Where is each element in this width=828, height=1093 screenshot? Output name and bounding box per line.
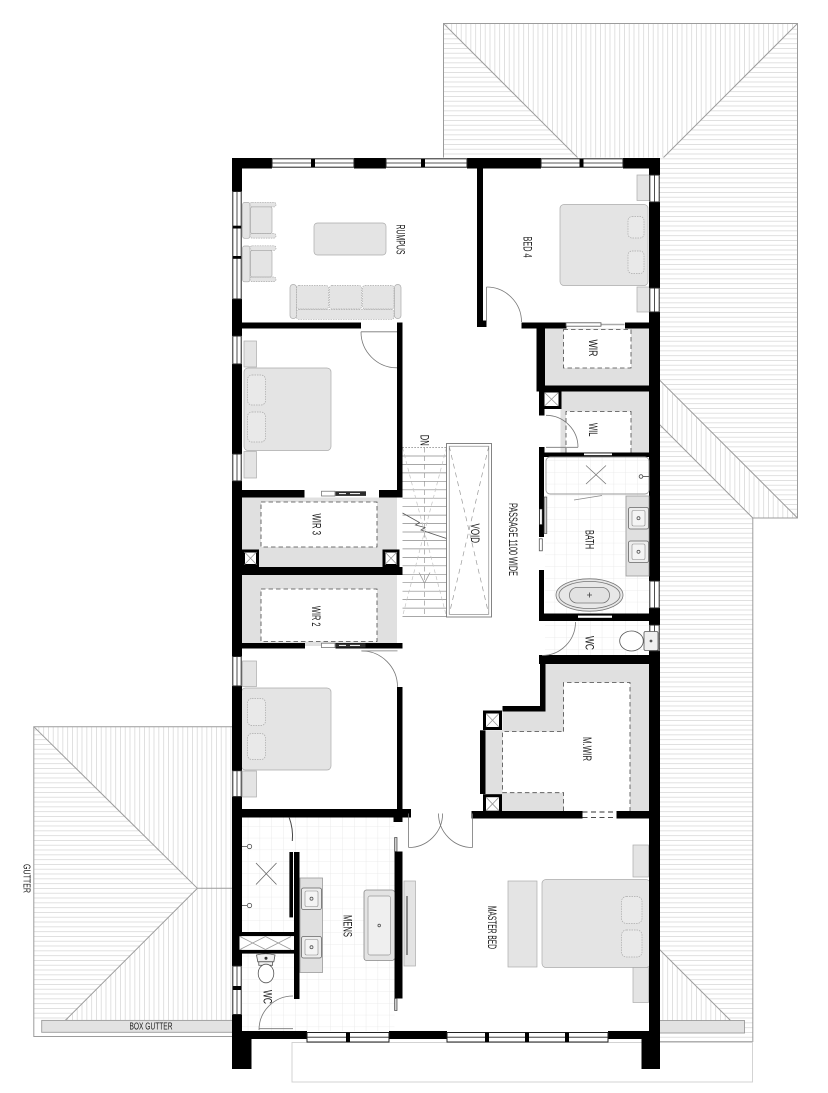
svg-text:WC: WC (261, 990, 273, 1004)
svg-text:WIL: WIL (586, 423, 598, 437)
svg-text:DN: DN (418, 435, 430, 446)
svg-text:MENS: MENS (341, 915, 353, 937)
svg-text:MASTER BED: MASTER BED (485, 906, 497, 949)
svg-text:BATH: BATH (583, 530, 595, 549)
svg-text:RUMPUS: RUMPUS (394, 225, 406, 255)
svg-text:GUTTER: GUTTER (21, 864, 32, 893)
svg-text:M.WIR: M.WIR (580, 737, 592, 761)
svg-text:WIR 3: WIR 3 (310, 514, 322, 536)
svg-text:WIR 2: WIR 2 (309, 606, 321, 627)
svg-text:PASSAGE 1100 WIDE: PASSAGE 1100 WIDE (506, 503, 518, 576)
svg-text:BED 4: BED 4 (521, 237, 533, 258)
svg-text:WIR: WIR (586, 340, 598, 357)
svg-text:WC: WC (583, 636, 595, 650)
svg-text:BOX GUTTER: BOX GUTTER (130, 1022, 173, 1033)
svg-text:VOID: VOID (468, 524, 480, 544)
